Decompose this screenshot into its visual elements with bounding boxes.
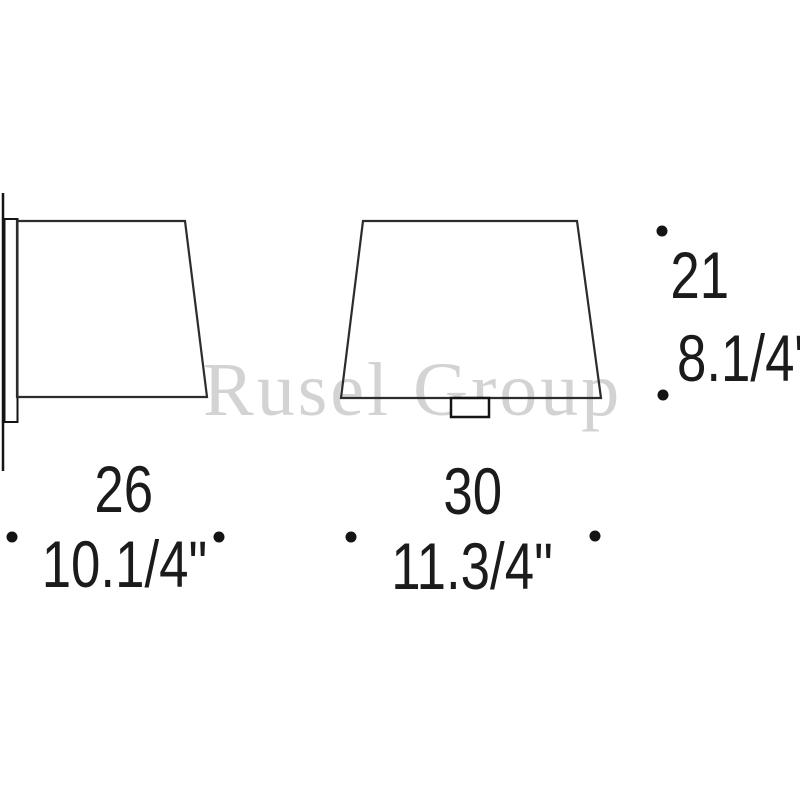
dimension-side-depth: 26 10.1/4" — [4, 456, 244, 597]
backplate-side-view — [5, 219, 18, 422]
dimension-front-width-inch: 11.3/4" — [350, 533, 595, 599]
dimension-dot — [658, 390, 669, 401]
lamp-holder — [451, 398, 489, 417]
dimension-height-inch: 8.1/4" — [660, 325, 800, 391]
technical-drawing-canvas: Rusel Group 26 10.1/4" 30 — [0, 0, 800, 800]
dimension-side-depth-cm: 26 — [4, 456, 244, 522]
dimension-side-depth-inch: 10.1/4" — [4, 531, 244, 597]
dimension-front-width: 30 11.3/4" — [350, 458, 595, 599]
shade-side-view — [17, 221, 207, 397]
lamp-line-drawing — [0, 0, 800, 800]
shade-front-view — [341, 221, 601, 398]
dimension-front-width-cm: 30 — [350, 458, 595, 524]
dimension-dot — [657, 226, 668, 237]
dimension-height-cm: 21 — [640, 242, 760, 308]
